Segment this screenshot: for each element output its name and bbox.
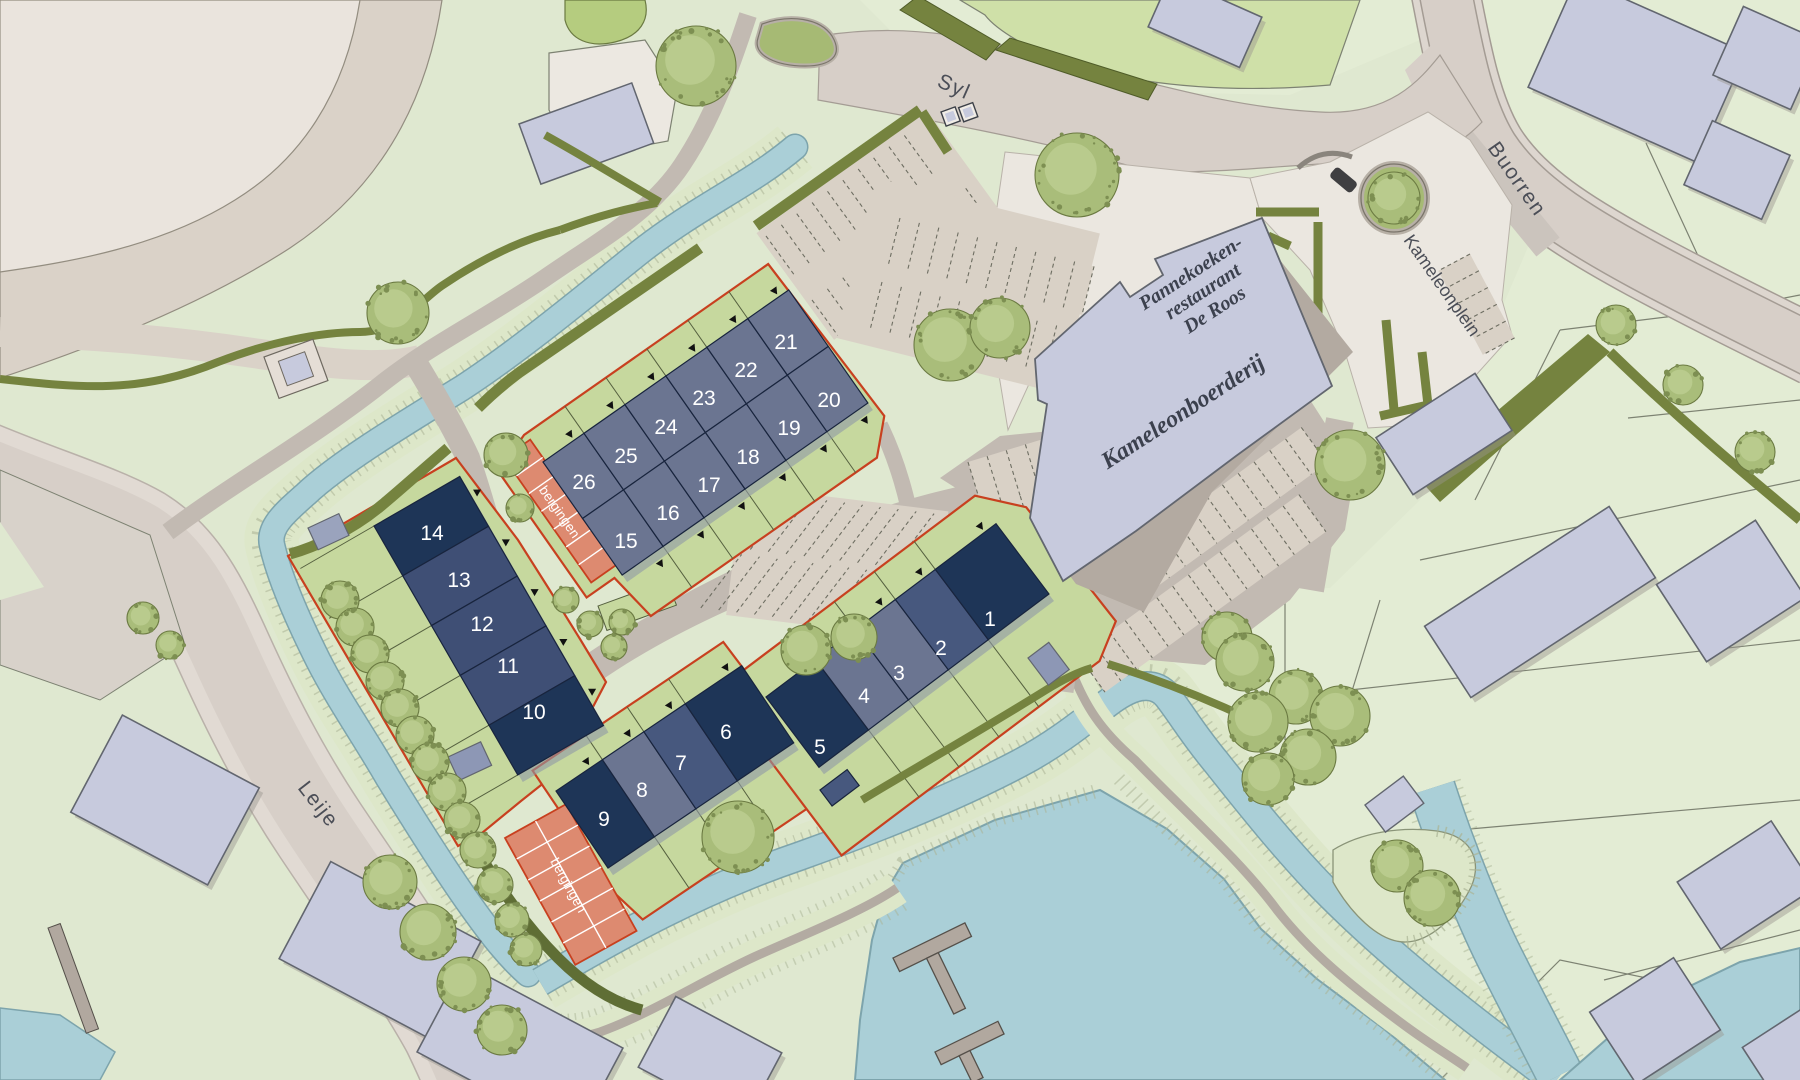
svg-text:19: 19 xyxy=(777,417,800,440)
svg-text:20: 20 xyxy=(817,389,840,412)
svg-text:17: 17 xyxy=(697,474,720,497)
svg-text:11: 11 xyxy=(497,655,519,678)
svg-text:4: 4 xyxy=(858,685,870,708)
svg-text:2: 2 xyxy=(935,637,947,660)
svg-text:16: 16 xyxy=(656,502,679,525)
svg-text:5: 5 xyxy=(814,736,826,759)
svg-text:3: 3 xyxy=(893,662,905,685)
svg-text:10: 10 xyxy=(522,701,545,724)
svg-text:1: 1 xyxy=(984,608,996,631)
svg-text:25: 25 xyxy=(614,445,637,468)
svg-text:26: 26 xyxy=(572,471,595,494)
svg-text:13: 13 xyxy=(447,569,470,592)
svg-text:14: 14 xyxy=(420,522,444,545)
svg-text:24: 24 xyxy=(654,416,678,439)
svg-text:15: 15 xyxy=(614,530,637,553)
svg-text:6: 6 xyxy=(720,721,732,744)
svg-text:7: 7 xyxy=(675,752,687,775)
svg-text:21: 21 xyxy=(774,331,797,354)
svg-text:22: 22 xyxy=(734,359,757,382)
svg-text:18: 18 xyxy=(736,446,759,469)
svg-text:12: 12 xyxy=(470,613,493,636)
svg-text:8: 8 xyxy=(636,779,648,802)
svg-text:23: 23 xyxy=(692,387,715,410)
svg-text:9: 9 xyxy=(598,808,610,831)
